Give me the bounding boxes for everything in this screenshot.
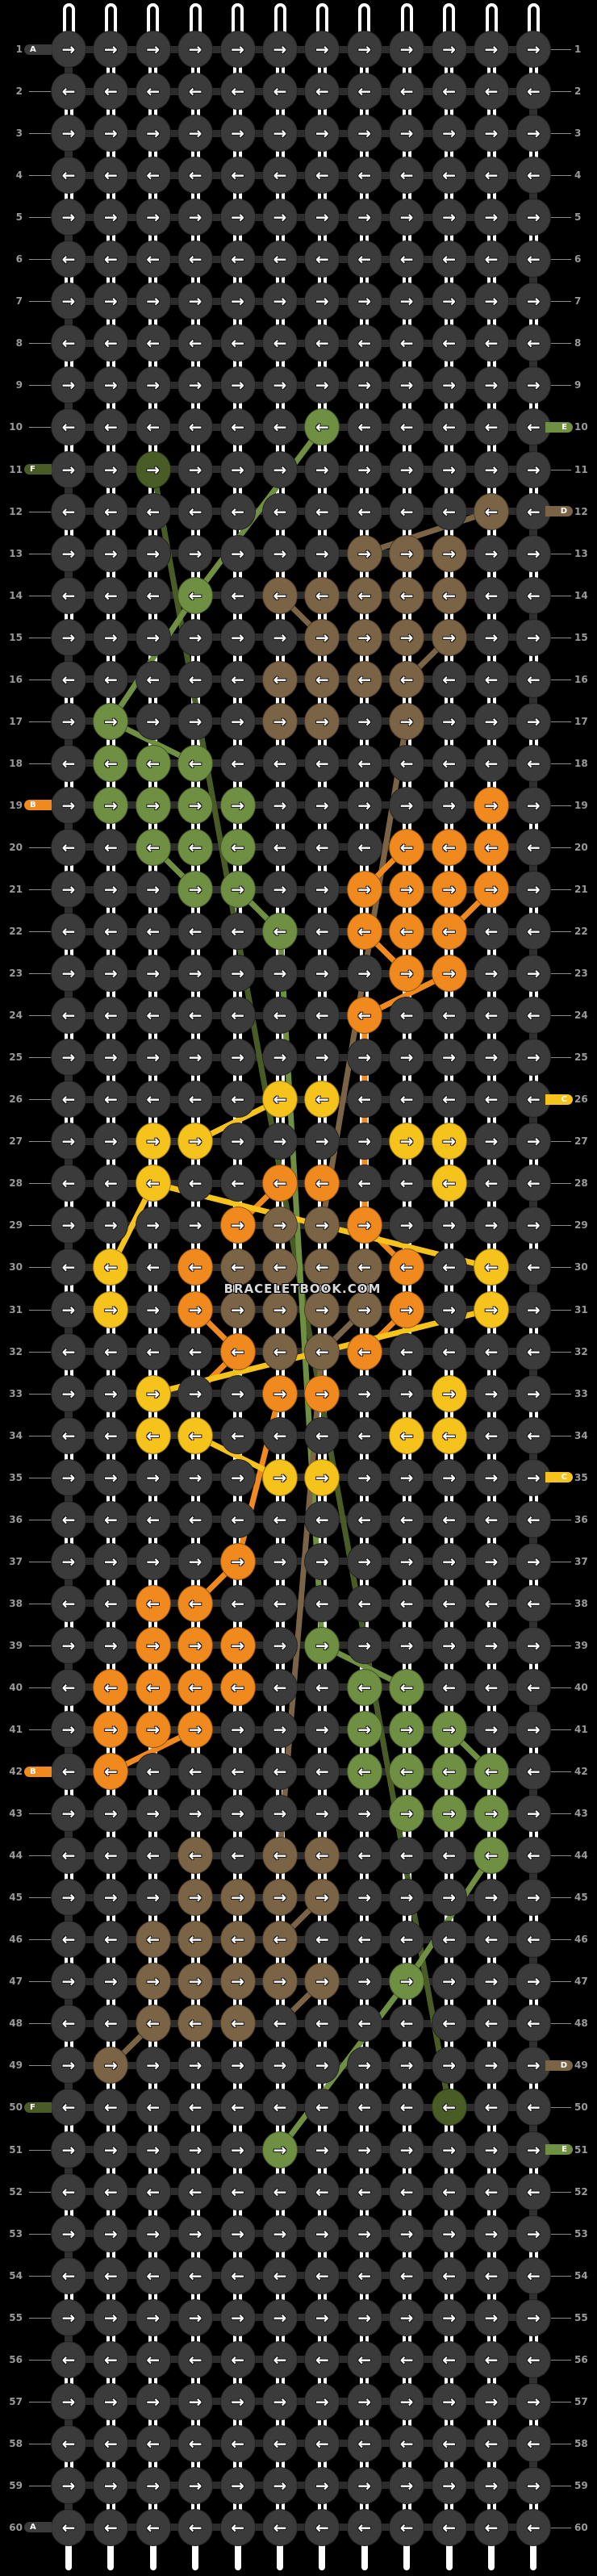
knot-dark-gray[interactable]: ←	[474, 1333, 509, 1370]
knot-brown[interactable]: ←	[136, 2005, 171, 2042]
knot-dark-gray[interactable]: ←	[347, 1417, 382, 1454]
knot-dark-gray[interactable]: ←	[136, 1333, 171, 1370]
knot-green[interactable]: →	[93, 703, 128, 740]
knot-green[interactable]: →	[136, 787, 171, 824]
knot-dark-gray[interactable]: →	[262, 2467, 298, 2504]
knot-dark-gray[interactable]: ←	[51, 1501, 86, 1538]
knot-dark-gray[interactable]: →	[516, 2215, 551, 2252]
knot-dark-gray[interactable]: ←	[347, 2341, 382, 2378]
knot-orange[interactable]: ←	[389, 829, 424, 866]
knot-dark-gray[interactable]: ←	[177, 1333, 213, 1370]
knot-orange[interactable]: →	[389, 1291, 424, 1328]
knot-dark-gray[interactable]: ←	[262, 745, 298, 782]
knot-green[interactable]: ←	[432, 1753, 467, 1790]
knot-dark-gray[interactable]: ←	[432, 240, 467, 278]
knot-dark-gray[interactable]: ←	[474, 1165, 509, 1202]
knot-brown[interactable]: →	[304, 619, 340, 656]
knot-orange[interactable]: ←	[389, 1248, 424, 1286]
knot-dark-gray[interactable]: →	[516, 2467, 551, 2504]
knot-dark-gray[interactable]: ←	[516, 1417, 551, 1454]
knot-dark-gray[interactable]: →	[220, 1123, 256, 1160]
knot-dark-gray[interactable]: →	[516, 1543, 551, 1580]
knot-dark-gray[interactable]: →	[432, 2047, 467, 2084]
knot-green[interactable]: ←	[347, 1669, 382, 1706]
knot-dark-gray[interactable]: ←	[51, 829, 86, 866]
knot-dark-gray[interactable]: ←	[51, 2005, 86, 2042]
knot-orange[interactable]: ←	[93, 1669, 128, 1706]
knot-dark-gray[interactable]: ←	[304, 1417, 340, 1454]
knot-dark-gray[interactable]: ←	[262, 1753, 298, 1790]
knot-dark-gray[interactable]: ←	[177, 1501, 213, 1538]
knot-dark-gray[interactable]: ←	[93, 1333, 128, 1370]
knot-dark-gray[interactable]: ←	[220, 408, 256, 445]
knot-dark-gray[interactable]: →	[51, 1375, 86, 1412]
knot-dark-gray[interactable]: ←	[136, 2173, 171, 2210]
knot-orange[interactable]: ←	[474, 829, 509, 866]
knot-dark-gray[interactable]: →	[474, 955, 509, 992]
knot-dark-gray[interactable]: →	[220, 2047, 256, 2084]
knot-dark-gray[interactable]: ←	[220, 997, 256, 1034]
knot-dark-gray[interactable]: →	[136, 619, 171, 656]
knot-dark-gray[interactable]: ←	[93, 997, 128, 1034]
knot-orange[interactable]: →	[389, 955, 424, 992]
knot-dark-gray[interactable]: →	[51, 451, 86, 488]
knot-dark-gray[interactable]: →	[262, 282, 298, 320]
knot-dark-gray[interactable]: ←	[389, 2173, 424, 2210]
knot-dark-gray[interactable]: ←	[220, 2341, 256, 2378]
knot-dark-gray[interactable]: →	[136, 115, 171, 152]
knot-dark-gray[interactable]: ←	[136, 661, 171, 698]
knot-dark-gray[interactable]: →	[262, 2299, 298, 2336]
knot-brown[interactable]: →	[304, 703, 340, 740]
knot-brown[interactable]: ←	[304, 1248, 340, 1286]
knot-dark-gray[interactable]: →	[51, 2131, 86, 2168]
knot-dark-gray[interactable]: →	[262, 535, 298, 572]
knot-orange[interactable]: →	[220, 1627, 256, 1664]
knot-dark-gray[interactable]: →	[220, 199, 256, 236]
knot-brown[interactable]: ←	[474, 493, 509, 530]
knot-brown[interactable]: →	[347, 1291, 382, 1328]
knot-dark-gray[interactable]: ←	[220, 1165, 256, 1202]
knot-dark-gray[interactable]: →	[304, 1711, 340, 1748]
knot-dark-gray[interactable]: →	[220, 2131, 256, 2168]
knot-dark-gray[interactable]: →	[474, 1879, 509, 1916]
knot-dark-gray[interactable]: ←	[51, 577, 86, 614]
knot-dark-gray[interactable]: →	[93, 2215, 128, 2252]
knot-orange[interactable]: ←	[220, 1333, 256, 1370]
knot-dark-gray[interactable]: ←	[432, 408, 467, 445]
knot-dark-gray[interactable]: ←	[93, 1501, 128, 1538]
knot-orange[interactable]: ←	[347, 1333, 382, 1370]
knot-dark-gray[interactable]: →	[474, 199, 509, 236]
knot-brown[interactable]: ←	[136, 1921, 171, 1958]
knot-dark-gray[interactable]: →	[432, 2383, 467, 2420]
knot-dark-gray[interactable]: ←	[516, 1837, 551, 1874]
knot-dark-gray[interactable]: →	[432, 703, 467, 740]
knot-brown[interactable]: →	[304, 1963, 340, 2000]
knot-dark-gray[interactable]: ←	[389, 2341, 424, 2378]
knot-dark-gray[interactable]: →	[304, 1039, 340, 1076]
knot-green[interactable]: →	[304, 1627, 340, 1664]
knot-dark-gray[interactable]: ←	[389, 1081, 424, 1118]
knot-dark-gray[interactable]: ←	[93, 2005, 128, 2042]
knot-dark-gray[interactable]: ←	[304, 493, 340, 530]
knot-dark-gray[interactable]: →	[136, 955, 171, 992]
knot-dark-gray[interactable]: →	[474, 1123, 509, 1160]
knot-dark-gray[interactable]: ←	[432, 1669, 467, 1706]
knot-brown[interactable]: →	[432, 535, 467, 572]
knot-dark-gray[interactable]: →	[136, 2047, 171, 2084]
knot-dark-gray[interactable]: →	[136, 871, 171, 908]
knot-dark-gray[interactable]: ←	[177, 1081, 213, 1118]
knot-dark-gray[interactable]: →	[177, 2215, 213, 2252]
knot-dark-gray[interactable]: ←	[177, 2257, 213, 2294]
knot-dark-gray[interactable]: ←	[474, 997, 509, 1034]
knot-brown[interactable]: ←	[262, 1333, 298, 1370]
knot-dark-gray[interactable]: →	[304, 282, 340, 320]
knot-dark-gray[interactable]: ←	[262, 408, 298, 445]
knot-brown[interactable]: ←	[347, 577, 382, 614]
knot-dark-gray[interactable]: →	[516, 1711, 551, 1748]
knot-dark-gray[interactable]: ←	[432, 157, 467, 194]
knot-dark-gray[interactable]: →	[516, 1206, 551, 1244]
knot-orange[interactable]: ←	[432, 913, 467, 950]
knot-dark-gray[interactable]: →	[51, 535, 86, 572]
knot-dark-gray[interactable]: →	[220, 1039, 256, 1076]
knot-dark-gray[interactable]: ←	[516, 1669, 551, 1706]
knot-dark-gray[interactable]: ←	[93, 73, 128, 110]
knot-dark-gray[interactable]: →	[136, 1543, 171, 1580]
knot-yellow[interactable]: →	[432, 1375, 467, 1412]
knot-orange[interactable]: →	[136, 1711, 171, 1748]
knot-dark-gray[interactable]: →	[177, 2131, 213, 2168]
knot-dark-gray[interactable]: ←	[347, 2005, 382, 2042]
knot-dark-gray[interactable]: →	[347, 1123, 382, 1160]
knot-dark-gray[interactable]: ←	[474, 1081, 509, 1118]
knot-dark-gray[interactable]: →	[51, 1795, 86, 1832]
knot-dark-gray[interactable]: →	[177, 2047, 213, 2084]
knot-yellow[interactable]: ←	[136, 1165, 171, 1202]
knot-dark-gray[interactable]: ←	[136, 2425, 171, 2462]
knot-orange[interactable]: →	[389, 871, 424, 908]
knot-dark-gray[interactable]: ←	[51, 1753, 86, 1790]
knot-dark-gray[interactable]: →	[177, 282, 213, 320]
knot-dark-gray[interactable]: →	[51, 2467, 86, 2504]
knot-dark-gray[interactable]: ←	[304, 1921, 340, 1958]
knot-brown[interactable]: ←	[220, 2005, 256, 2042]
knot-dark-green[interactable]: →	[136, 451, 171, 488]
knot-dark-gray[interactable]: →	[347, 1459, 382, 1496]
knot-dark-gray[interactable]: →	[389, 2131, 424, 2168]
knot-green[interactable]: ←	[474, 1753, 509, 1790]
knot-orange[interactable]: →	[177, 1627, 213, 1664]
knot-dark-gray[interactable]: ←	[262, 1669, 298, 1706]
knot-dark-gray[interactable]: ←	[262, 829, 298, 866]
knot-brown[interactable]: ←	[262, 577, 298, 614]
knot-dark-gray[interactable]: →	[220, 282, 256, 320]
knot-dark-gray[interactable]: ←	[516, 2341, 551, 2378]
knot-dark-gray[interactable]: ←	[389, 2425, 424, 2462]
knot-dark-gray[interactable]: →	[389, 2299, 424, 2336]
knot-dark-gray[interactable]: ←	[389, 493, 424, 530]
knot-brown[interactable]: →	[220, 1291, 256, 1328]
knot-orange[interactable]: →	[347, 871, 382, 908]
knot-dark-gray[interactable]: ←	[93, 1165, 128, 1202]
knot-dark-gray[interactable]: →	[262, 1795, 298, 1832]
knot-yellow[interactable]: ←	[389, 1417, 424, 1454]
knot-dark-gray[interactable]: →	[262, 2215, 298, 2252]
knot-dark-gray[interactable]: ←	[389, 73, 424, 110]
knot-dark-gray[interactable]: →	[347, 31, 382, 68]
knot-dark-gray[interactable]: ←	[474, 157, 509, 194]
knot-dark-gray[interactable]: →	[262, 871, 298, 908]
knot-dark-gray[interactable]: →	[474, 31, 509, 68]
knot-dark-gray[interactable]: →	[136, 2215, 171, 2252]
knot-dark-gray[interactable]: ←	[262, 2173, 298, 2210]
knot-dark-gray[interactable]: →	[347, 2383, 382, 2420]
knot-dark-gray[interactable]: ←	[220, 913, 256, 950]
knot-brown[interactable]: ←	[262, 1248, 298, 1286]
knot-dark-gray[interactable]: ←	[51, 240, 86, 278]
knot-dark-gray[interactable]: →	[432, 1627, 467, 1664]
knot-dark-gray[interactable]: ←	[93, 1417, 128, 1454]
knot-dark-gray[interactable]: ←	[51, 1585, 86, 1622]
knot-dark-gray[interactable]: ←	[262, 1417, 298, 1454]
knot-brown[interactable]: →	[304, 1206, 340, 1244]
knot-dark-gray[interactable]: →	[93, 199, 128, 236]
knot-dark-gray[interactable]: →	[347, 1879, 382, 1916]
knot-dark-gray[interactable]: →	[220, 366, 256, 404]
knot-dark-gray[interactable]: →	[220, 31, 256, 68]
knot-dark-gray[interactable]: →	[93, 451, 128, 488]
knot-orange[interactable]: ←	[136, 1585, 171, 1622]
knot-brown[interactable]: ←	[347, 661, 382, 698]
knot-dark-gray[interactable]: ←	[432, 324, 467, 362]
knot-dark-gray[interactable]: ←	[347, 1081, 382, 1118]
knot-green[interactable]: ←	[262, 913, 298, 950]
knot-dark-gray[interactable]: →	[136, 1879, 171, 1916]
knot-dark-gray[interactable]: ←	[220, 2425, 256, 2462]
knot-dark-gray[interactable]: ←	[51, 913, 86, 950]
knot-dark-gray[interactable]: →	[389, 2047, 424, 2084]
knot-dark-gray[interactable]: →	[304, 535, 340, 572]
knot-dark-gray[interactable]: →	[93, 282, 128, 320]
knot-dark-gray[interactable]: →	[51, 2383, 86, 2420]
knot-dark-gray[interactable]: ←	[432, 2341, 467, 2378]
knot-dark-gray[interactable]: →	[262, 955, 298, 992]
knot-dark-gray[interactable]: →	[220, 2467, 256, 2504]
knot-dark-gray[interactable]: ←	[389, 324, 424, 362]
knot-dark-gray[interactable]: ←	[220, 1837, 256, 1874]
knot-dark-gray[interactable]: →	[93, 2383, 128, 2420]
knot-orange[interactable]: ←	[389, 913, 424, 950]
knot-dark-gray[interactable]: →	[347, 366, 382, 404]
knot-dark-gray[interactable]: →	[432, 451, 467, 488]
knot-dark-gray[interactable]: ←	[516, 1165, 551, 1202]
knot-green[interactable]: ←	[389, 1669, 424, 1706]
knot-dark-gray[interactable]: ←	[474, 913, 509, 950]
knot-yellow[interactable]: ←	[93, 1248, 128, 1286]
knot-orange[interactable]: →	[177, 1711, 213, 1748]
knot-dark-gray[interactable]: ←	[432, 2509, 467, 2546]
knot-dark-gray[interactable]: ←	[93, 2341, 128, 2378]
knot-dark-gray[interactable]: ←	[262, 324, 298, 362]
knot-orange[interactable]: ←	[304, 1165, 340, 1202]
knot-dark-gray[interactable]: →	[51, 1879, 86, 1916]
knot-dark-gray[interactable]: ←	[347, 2425, 382, 2462]
knot-brown[interactable]: →	[389, 535, 424, 572]
knot-dark-gray[interactable]: →	[516, 787, 551, 824]
knot-dark-gray[interactable]: ←	[516, 1333, 551, 1370]
knot-dark-gray[interactable]: →	[93, 31, 128, 68]
knot-dark-gray[interactable]: →	[474, 703, 509, 740]
knot-dark-gray[interactable]: ←	[347, 1165, 382, 1202]
knot-dark-gray[interactable]: →	[474, 2299, 509, 2336]
knot-brown[interactable]: →	[347, 535, 382, 572]
knot-brown[interactable]: ←	[220, 1248, 256, 1286]
knot-dark-gray[interactable]: →	[262, 2383, 298, 2420]
knot-dark-gray[interactable]: ←	[93, 2257, 128, 2294]
knot-dark-gray[interactable]: ←	[136, 493, 171, 530]
knot-dark-gray[interactable]: →	[516, 1123, 551, 1160]
knot-yellow[interactable]: ←	[304, 1081, 340, 1118]
knot-dark-gray[interactable]: ←	[389, 1837, 424, 1874]
knot-dark-gray[interactable]: →	[474, 535, 509, 572]
knot-dark-gray[interactable]: ←	[51, 2509, 86, 2546]
knot-dark-gray[interactable]: →	[432, 1543, 467, 1580]
knot-dark-gray[interactable]: ←	[347, 493, 382, 530]
knot-dark-gray[interactable]: →	[347, 199, 382, 236]
knot-orange[interactable]: ←	[220, 1669, 256, 1706]
knot-dark-gray[interactable]: ←	[177, 73, 213, 110]
knot-dark-gray[interactable]: →	[93, 1543, 128, 1580]
knot-dark-gray[interactable]: ←	[51, 2257, 86, 2294]
knot-dark-gray[interactable]: ←	[51, 1921, 86, 1958]
knot-dark-gray[interactable]: ←	[177, 2425, 213, 2462]
knot-dark-gray[interactable]: ←	[220, 493, 256, 530]
knot-dark-gray[interactable]: →	[432, 1206, 467, 1244]
knot-dark-gray[interactable]: ←	[51, 2425, 86, 2462]
knot-dark-gray[interactable]: ←	[347, 2173, 382, 2210]
knot-dark-gray[interactable]: ←	[93, 913, 128, 950]
knot-dark-gray[interactable]: ←	[220, 2257, 256, 2294]
knot-dark-gray[interactable]: →	[304, 2215, 340, 2252]
knot-dark-gray[interactable]: →	[51, 2215, 86, 2252]
knot-dark-gray[interactable]: →	[347, 1543, 382, 1580]
knot-dark-gray[interactable]: →	[177, 1375, 213, 1412]
knot-dark-gray[interactable]: ←	[304, 2257, 340, 2294]
knot-dark-gray[interactable]: →	[347, 1627, 382, 1664]
knot-dark-gray[interactable]: →	[347, 2467, 382, 2504]
knot-dark-gray[interactable]: ←	[516, 829, 551, 866]
knot-dark-gray[interactable]: ←	[347, 829, 382, 866]
knot-dark-gray[interactable]: ←	[51, 1081, 86, 1118]
knot-dark-gray[interactable]: →	[516, 366, 551, 404]
knot-dark-gray[interactable]: ←	[304, 1669, 340, 1706]
knot-dark-gray[interactable]: ←	[136, 324, 171, 362]
knot-dark-gray[interactable]: →	[136, 2383, 171, 2420]
knot-green[interactable]: ←	[136, 829, 171, 866]
knot-dark-gray[interactable]: →	[93, 115, 128, 152]
knot-orange[interactable]: ←	[177, 1585, 213, 1622]
knot-dark-gray[interactable]: ←	[136, 157, 171, 194]
knot-brown[interactable]: →	[347, 619, 382, 656]
knot-dark-gray[interactable]: ←	[262, 240, 298, 278]
knot-brown[interactable]: →	[177, 1879, 213, 1916]
knot-dark-gray[interactable]: →	[389, 2215, 424, 2252]
knot-dark-gray[interactable]: ←	[347, 408, 382, 445]
knot-dark-gray[interactable]: →	[304, 871, 340, 908]
knot-dark-gray[interactable]: ←	[136, 1753, 171, 1790]
knot-dark-gray[interactable]: →	[516, 1039, 551, 1076]
knot-dark-gray[interactable]: ←	[474, 2173, 509, 2210]
knot-dark-gray[interactable]: ←	[220, 1081, 256, 1118]
knot-dark-gray[interactable]: →	[432, 366, 467, 404]
knot-dark-gray[interactable]: →	[474, 1627, 509, 1664]
knot-dark-gray[interactable]: ←	[474, 2257, 509, 2294]
knot-dark-gray[interactable]: →	[177, 535, 213, 572]
knot-dark-gray[interactable]: →	[136, 1459, 171, 1496]
knot-green[interactable]: ←	[389, 1753, 424, 1790]
knot-dark-gray[interactable]: →	[516, 451, 551, 488]
knot-yellow[interactable]: →	[389, 1123, 424, 1160]
knot-green[interactable]: →	[389, 1795, 424, 1832]
knot-dark-gray[interactable]: →	[220, 1795, 256, 1832]
knot-yellow[interactable]: ←	[177, 1417, 213, 1454]
knot-dark-gray[interactable]: ←	[220, 577, 256, 614]
knot-dark-gray[interactable]: ←	[136, 2257, 171, 2294]
knot-dark-gray[interactable]: ←	[93, 829, 128, 866]
knot-dark-gray[interactable]: ←	[474, 2341, 509, 2378]
knot-dark-gray[interactable]: →	[389, 451, 424, 488]
knot-dark-gray[interactable]: ←	[516, 1585, 551, 1622]
knot-dark-gray[interactable]: ←	[347, 1837, 382, 1874]
knot-dark-gray[interactable]: ←	[93, 1921, 128, 1958]
knot-brown[interactable]: ←	[304, 661, 340, 698]
knot-yellow[interactable]: →	[432, 1123, 467, 1160]
knot-dark-gray[interactable]: →	[474, 2131, 509, 2168]
knot-dark-gray[interactable]: →	[262, 199, 298, 236]
knot-dark-gray[interactable]: ←	[516, 2173, 551, 2210]
knot-dark-gray[interactable]: ←	[51, 1837, 86, 1874]
knot-dark-gray[interactable]: →	[177, 703, 213, 740]
knot-dark-gray[interactable]: →	[347, 2047, 382, 2084]
knot-dark-gray[interactable]: ←	[51, 2173, 86, 2210]
knot-brown[interactable]: →	[389, 703, 424, 740]
knot-dark-gray[interactable]: ←	[304, 240, 340, 278]
knot-green[interactable]: →	[220, 871, 256, 908]
knot-dark-gray[interactable]: ←	[51, 324, 86, 362]
knot-dark-gray[interactable]: ←	[516, 2257, 551, 2294]
knot-dark-gray[interactable]: ←	[93, 408, 128, 445]
knot-dark-gray[interactable]: →	[51, 2047, 86, 2084]
knot-dark-gray[interactable]: ←	[474, 2005, 509, 2042]
knot-dark-gray[interactable]: ←	[262, 493, 298, 530]
knot-dark-gray[interactable]: ←	[432, 73, 467, 110]
knot-dark-gray[interactable]: ←	[93, 2509, 128, 2546]
knot-dark-gray[interactable]: →	[474, 2215, 509, 2252]
knot-dark-gray[interactable]: ←	[389, 1165, 424, 1202]
knot-orange[interactable]: →	[304, 1375, 340, 1412]
knot-dark-gray[interactable]: ←	[516, 240, 551, 278]
knot-dark-gray[interactable]: ←	[304, 2005, 340, 2042]
knot-dark-gray[interactable]: →	[136, 703, 171, 740]
knot-dark-gray[interactable]: →	[389, 1039, 424, 1076]
knot-green[interactable]: →	[474, 1795, 509, 1832]
knot-dark-gray[interactable]: ←	[389, 408, 424, 445]
knot-dark-gray[interactable]: →	[516, 1375, 551, 1412]
knot-dark-gray[interactable]: →	[347, 2299, 382, 2336]
